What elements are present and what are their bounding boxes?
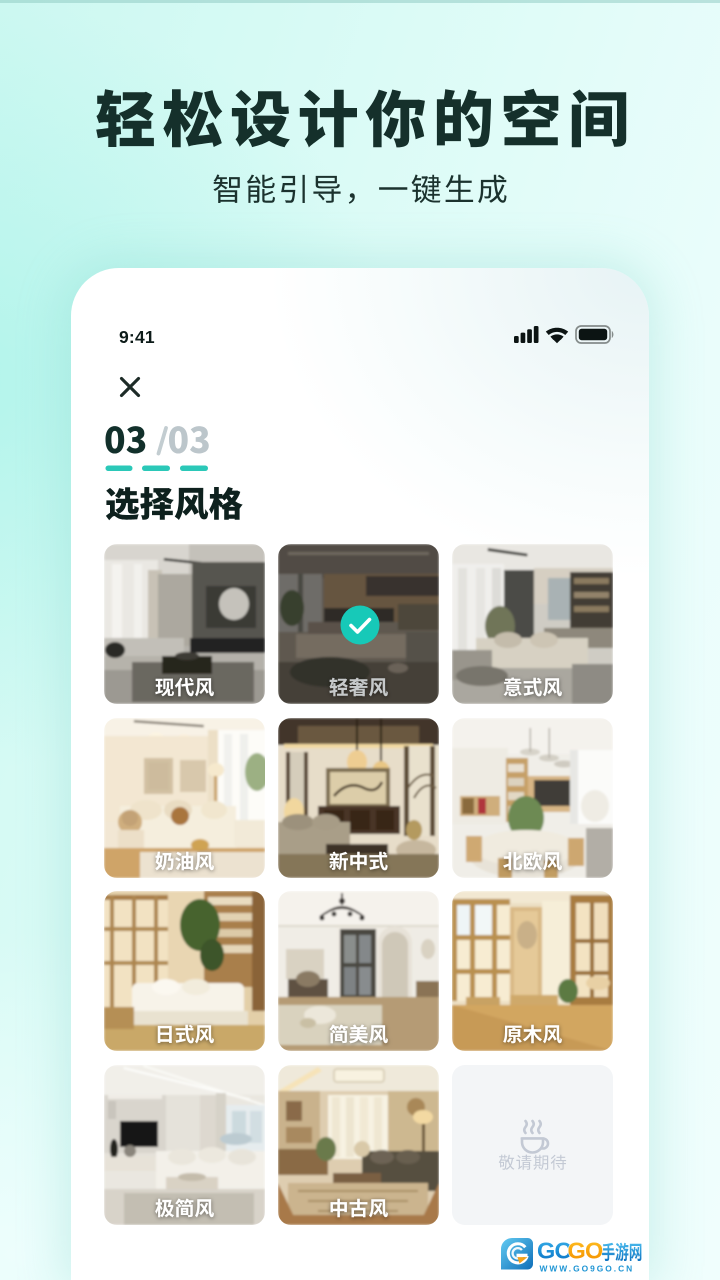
svg-text:WWW.GO9GO.CN: WWW.GO9GO.CN: [540, 1264, 635, 1274]
svg-text:GO: GO: [568, 1237, 603, 1263]
